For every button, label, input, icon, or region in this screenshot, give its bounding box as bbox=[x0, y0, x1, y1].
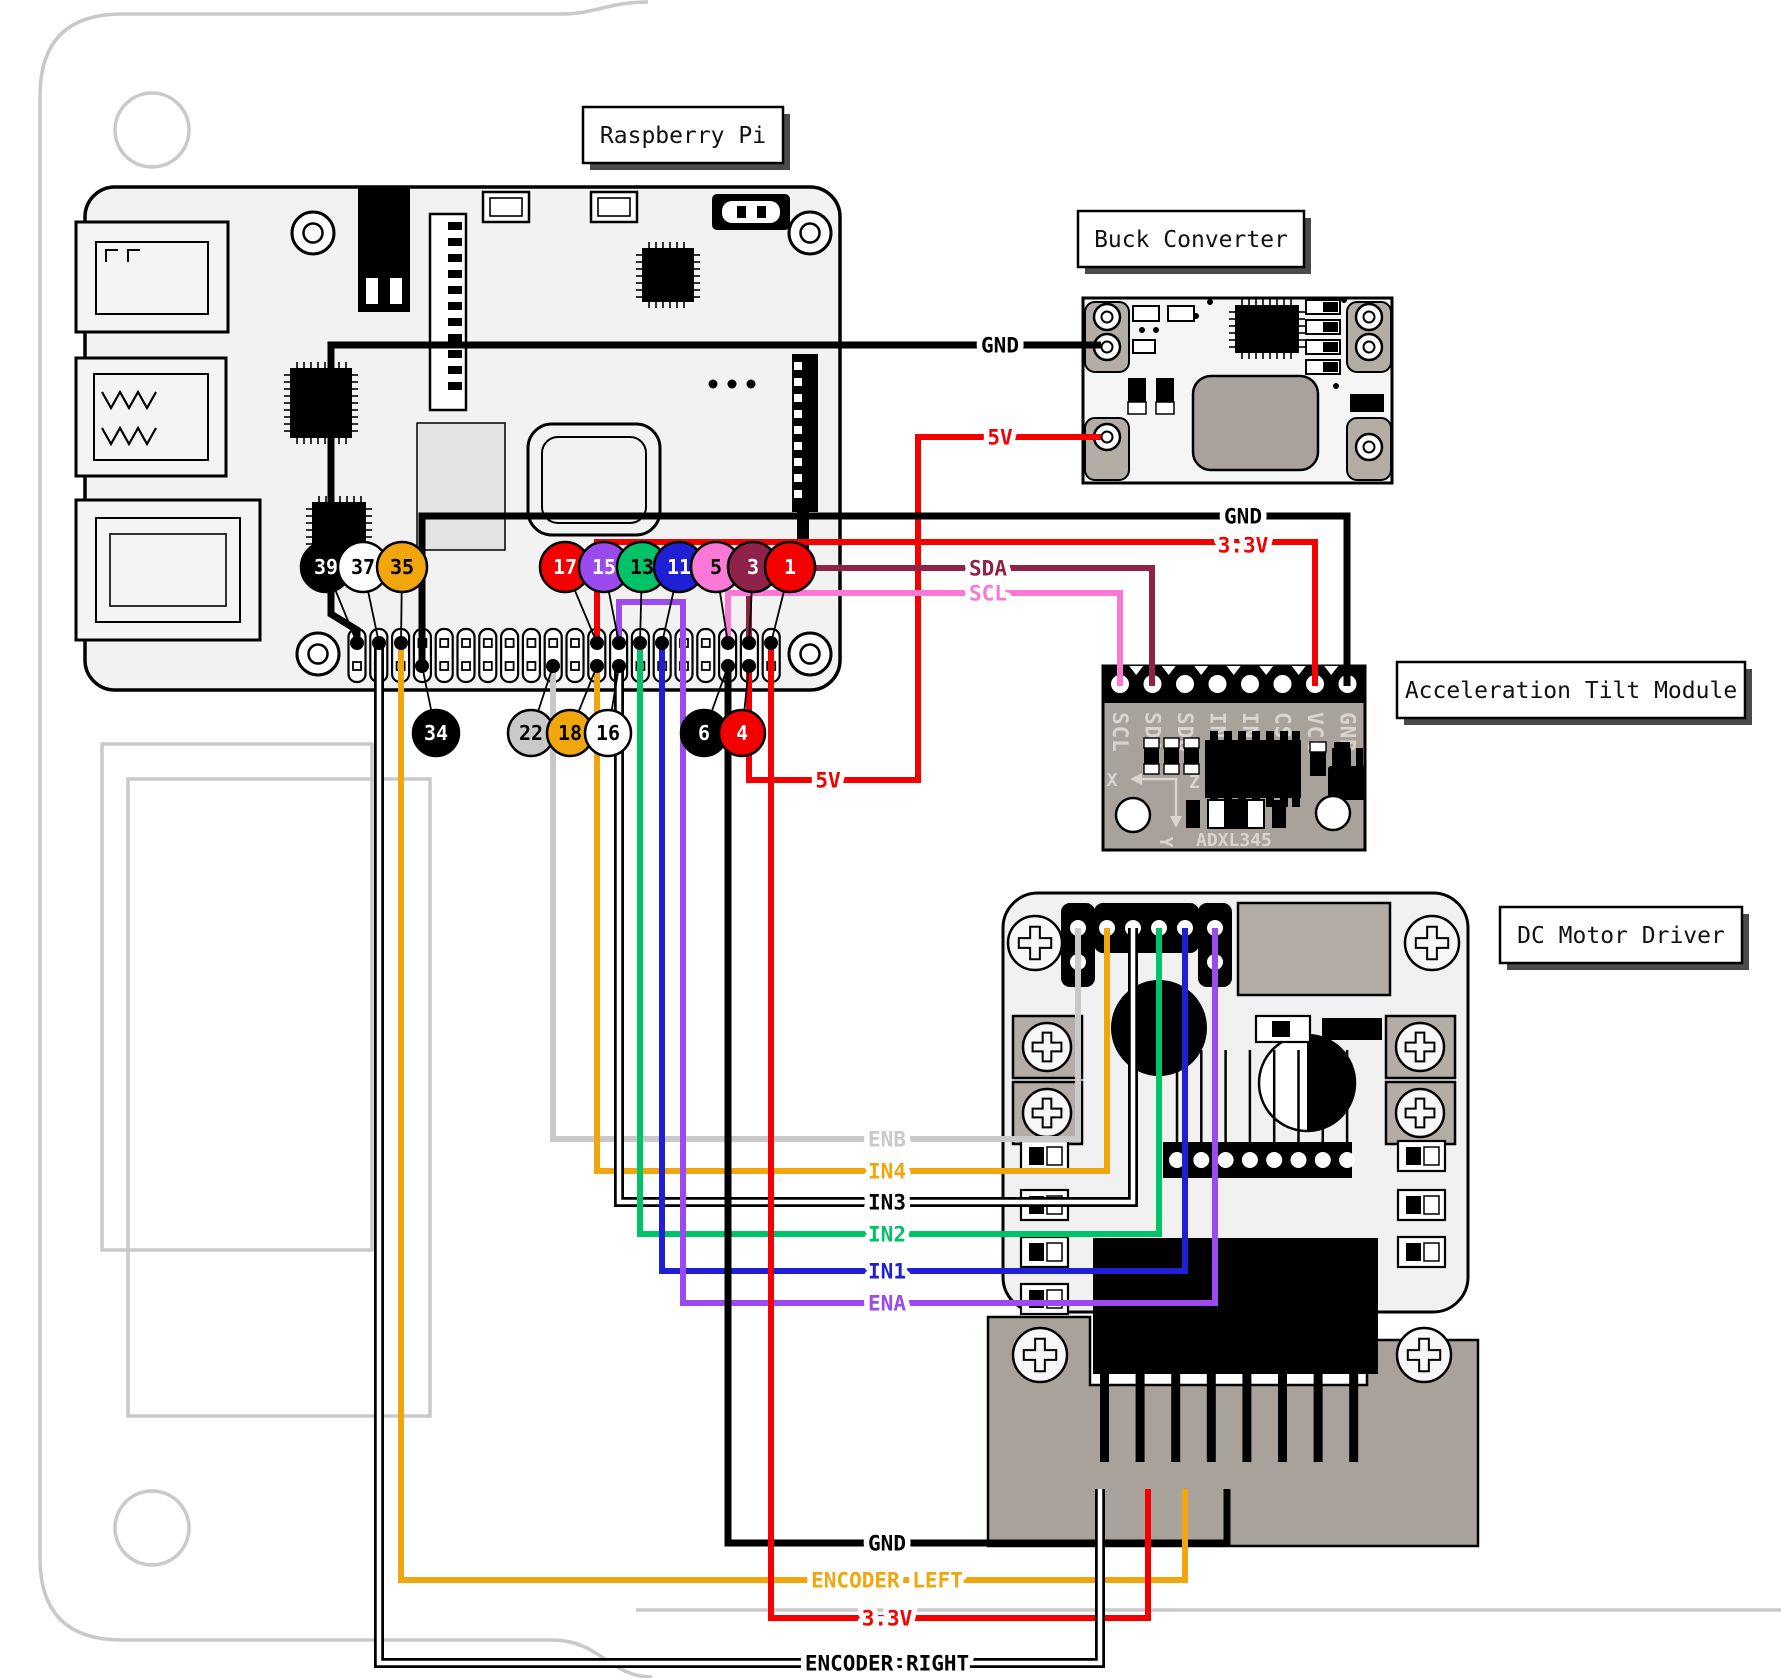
gpio-pin-dot bbox=[633, 636, 647, 650]
wire-label-5v: 5V bbox=[987, 425, 1013, 449]
power-ic-leg bbox=[1171, 1374, 1180, 1462]
buck-converter-label: Buck Converter bbox=[1078, 211, 1311, 274]
buck-smd-black bbox=[1350, 394, 1384, 412]
gpio-pin-unused bbox=[571, 639, 579, 647]
tilt-axis-x: X bbox=[1107, 770, 1118, 791]
mounting-hole bbox=[789, 633, 831, 675]
test-pads bbox=[709, 380, 756, 389]
pin-circle-4: 4 bbox=[719, 710, 765, 756]
tilt-chip-label: ADXL345 bbox=[1196, 830, 1272, 851]
pin-number: 13 bbox=[630, 555, 654, 579]
gpio-pin-unused bbox=[353, 662, 361, 670]
pin-number: 37 bbox=[351, 555, 375, 579]
gpio-pin-dot bbox=[742, 636, 756, 650]
chassis-hole-bottom bbox=[115, 1491, 189, 1565]
buck-inductor bbox=[1193, 376, 1318, 470]
wire-label-3-3v: 3.3V bbox=[1218, 533, 1269, 557]
gpio-pin-column bbox=[436, 629, 453, 682]
wire-label-in1: IN1 bbox=[868, 1259, 906, 1283]
gpio-pin-dot bbox=[546, 659, 560, 673]
driver-screw bbox=[1405, 916, 1459, 970]
gpio-pin-unused bbox=[549, 639, 557, 647]
power-ic-leg bbox=[1349, 1374, 1358, 1462]
gpio-pin-column bbox=[458, 629, 475, 682]
gpio-pin-dot bbox=[742, 659, 756, 673]
buck-regulator-ic bbox=[1229, 299, 1305, 359]
gpio-pin-dot bbox=[612, 659, 626, 673]
buck-converter-board bbox=[1083, 297, 1392, 483]
driver-power-terminal bbox=[1238, 903, 1390, 995]
usb-single-port bbox=[76, 500, 260, 640]
wire-label-in4: IN4 bbox=[868, 1159, 906, 1183]
buck-terminal-ring-inner bbox=[1102, 312, 1113, 323]
chip bbox=[1229, 299, 1305, 359]
gpio-pin-column bbox=[523, 629, 540, 682]
adxl345-chip bbox=[1205, 731, 1301, 807]
wire-label-scl: SCL bbox=[969, 581, 1007, 605]
pin-number: 18 bbox=[558, 721, 582, 745]
usb-double-port bbox=[76, 358, 226, 476]
gpio-pin-unused bbox=[462, 662, 470, 670]
buck-terminal-ring-inner bbox=[1364, 312, 1375, 323]
wire-label-in2: IN2 bbox=[868, 1222, 906, 1246]
gpio-pin-unused bbox=[702, 662, 710, 670]
raspberry-pi-label-text: Raspberry Pi bbox=[600, 123, 766, 149]
motor-terminal-screw bbox=[1023, 1089, 1071, 1137]
power-ic-leg bbox=[1207, 1374, 1216, 1462]
chip bbox=[284, 362, 358, 444]
gpio-pin-unused bbox=[506, 639, 514, 647]
motor-terminal-screw bbox=[1396, 1023, 1444, 1071]
tilt-axis-z: Z bbox=[1189, 772, 1200, 793]
gpio-pin-dot bbox=[394, 636, 408, 650]
gpio-pin-unused bbox=[440, 662, 448, 670]
chassis-cutout-a bbox=[102, 744, 372, 1250]
wire-label-encoder-right: ENCODER RIGHT bbox=[805, 1651, 969, 1675]
tilt-capacitors bbox=[1144, 738, 1199, 774]
mounting-hole bbox=[297, 633, 339, 675]
gpio-pin-unused bbox=[440, 639, 448, 647]
dc-motor-driver-board bbox=[988, 893, 1478, 1546]
power-ic-leg bbox=[1136, 1374, 1145, 1462]
pin-number: 35 bbox=[390, 555, 414, 579]
wiring-diagram: SCLSDASDOINT2INT1CSVCCGND bbox=[0, 0, 1781, 1678]
driver-strip-hole bbox=[1193, 1152, 1209, 1168]
ethernet-port bbox=[76, 222, 228, 332]
gpio-pin-column bbox=[479, 629, 496, 682]
pin-number: 17 bbox=[553, 555, 577, 579]
chassis-cutout-b bbox=[128, 779, 430, 1416]
pin-number: 16 bbox=[596, 721, 620, 745]
gpio-pin-dot bbox=[612, 636, 626, 650]
pin-number: 4 bbox=[736, 721, 748, 745]
driver-strip-hole bbox=[1315, 1152, 1331, 1168]
chassis-hole-top bbox=[115, 93, 189, 167]
wire-label-gnd: GND bbox=[981, 333, 1019, 357]
wire-label-gnd: GND bbox=[868, 1531, 906, 1555]
chip bbox=[636, 242, 700, 308]
gpio-pin-unused bbox=[462, 639, 470, 647]
acceleration-tilt-module-board: SCLSDASDOINT2INT1CSVCCGND bbox=[1103, 666, 1366, 851]
buck-terminal-ring-inner bbox=[1364, 442, 1375, 453]
pin-circle-34: 34 bbox=[413, 710, 459, 756]
gpio-pin-unused bbox=[484, 662, 492, 670]
pin-number: 11 bbox=[667, 555, 691, 579]
buck-terminal-ring-inner bbox=[1364, 342, 1375, 353]
gpio-pin-dot bbox=[415, 659, 429, 673]
tilt-pin-hole bbox=[1209, 675, 1227, 693]
pin-number: 34 bbox=[424, 721, 448, 745]
pin-number: 22 bbox=[519, 721, 543, 745]
mounting-hole bbox=[292, 212, 334, 254]
buck-converter-label-text: Buck Converter bbox=[1094, 227, 1288, 253]
bracket-screw bbox=[1397, 1328, 1451, 1382]
gpio-pin-unused bbox=[527, 662, 535, 670]
dc-motor-driver-label-text: DC Motor Driver bbox=[1517, 923, 1725, 949]
pin-number: 6 bbox=[698, 721, 710, 745]
power-ic-leg bbox=[1100, 1374, 1109, 1462]
driver-strip-hole bbox=[1242, 1152, 1258, 1168]
pin-number: 39 bbox=[314, 555, 338, 579]
motor-terminal-screw bbox=[1396, 1089, 1444, 1137]
bracket-screw bbox=[1013, 1328, 1067, 1382]
buck-terminal-ring-inner bbox=[1102, 342, 1113, 353]
power-ic-leg bbox=[1278, 1374, 1287, 1462]
power-ic-leg bbox=[1242, 1374, 1251, 1462]
gpio-pin-dot bbox=[590, 636, 604, 650]
gpio-pin-dot bbox=[655, 636, 669, 650]
motor-terminal-screw bbox=[1023, 1023, 1071, 1071]
gpio-pin-unused bbox=[527, 639, 535, 647]
buck-terminal-ring-inner bbox=[1102, 432, 1113, 443]
gpio-pin-column bbox=[501, 629, 518, 682]
tilt-pin-hole bbox=[1274, 675, 1292, 693]
gpio-pin-dot bbox=[764, 636, 778, 650]
tilt-hole-left bbox=[1116, 798, 1150, 832]
gpio-pin-dot bbox=[721, 636, 735, 650]
pin-number: 5 bbox=[710, 555, 722, 579]
hdmi-port-2 bbox=[591, 192, 637, 222]
acceleration-tilt-module-label-text: Acceleration Tilt Module bbox=[1405, 678, 1737, 704]
gpio-pin-dot bbox=[372, 636, 386, 650]
hdmi-port-1 bbox=[483, 192, 529, 222]
wire-label-3-3v: 3.3V bbox=[862, 1606, 913, 1630]
raspberry-pi-label: Raspberry Pi bbox=[583, 107, 790, 170]
driver-strip-hole bbox=[1266, 1152, 1282, 1168]
pin-circle-1: 1 bbox=[765, 542, 815, 592]
driver-screw bbox=[1008, 916, 1062, 970]
mounting-hole bbox=[789, 212, 831, 254]
gpio-pin-dot bbox=[721, 659, 735, 673]
power-ic-leg bbox=[1314, 1374, 1323, 1462]
pin-number: 1 bbox=[784, 555, 796, 579]
gpio-pin-column bbox=[567, 629, 584, 682]
display-connector bbox=[430, 214, 466, 410]
wire-label-encoder-left: ENCODER LEFT bbox=[811, 1568, 963, 1592]
driver-strip-hole bbox=[1218, 1152, 1234, 1168]
wire-label-enb: ENB bbox=[868, 1127, 906, 1151]
gpio-pin-unused bbox=[702, 639, 710, 647]
tilt-pin-label: SCL bbox=[1108, 712, 1132, 753]
tilt-hole-right bbox=[1316, 796, 1350, 830]
pin-number: 3 bbox=[747, 555, 759, 579]
wire-label-gnd: GND bbox=[1224, 504, 1262, 528]
tilt-axis-y: Y bbox=[1155, 837, 1176, 848]
acceleration-tilt-module-label: Acceleration Tilt Module bbox=[1397, 662, 1752, 725]
camera-connector bbox=[358, 188, 410, 312]
usb-c-power-port bbox=[712, 194, 790, 230]
wire-label-5v: 5V bbox=[815, 768, 841, 792]
gpio-pin-unused bbox=[571, 662, 579, 670]
pin-circle-35: 35 bbox=[377, 542, 427, 592]
pin-circle-16: 16 bbox=[585, 710, 631, 756]
gpio-pin-column bbox=[697, 629, 714, 682]
pin-number: 15 bbox=[592, 555, 616, 579]
gpio-pin-dot bbox=[350, 636, 364, 650]
tilt-pin-hole bbox=[1241, 675, 1259, 693]
dc-motor-driver-label: DC Motor Driver bbox=[1500, 907, 1749, 970]
metal-shield bbox=[417, 423, 505, 550]
wire-label-sda: SDA bbox=[969, 556, 1007, 580]
driver-strip-hole bbox=[1339, 1152, 1355, 1168]
tilt-pin-hole bbox=[1176, 675, 1194, 693]
gpio-pin-dot bbox=[590, 659, 604, 673]
driver-strip-hole bbox=[1291, 1152, 1307, 1168]
wire-label-in3: IN3 bbox=[868, 1190, 906, 1214]
wire-label-ena: ENA bbox=[868, 1291, 906, 1315]
gpio-pin-unused bbox=[484, 639, 492, 647]
gpio-pin-unused bbox=[506, 662, 514, 670]
